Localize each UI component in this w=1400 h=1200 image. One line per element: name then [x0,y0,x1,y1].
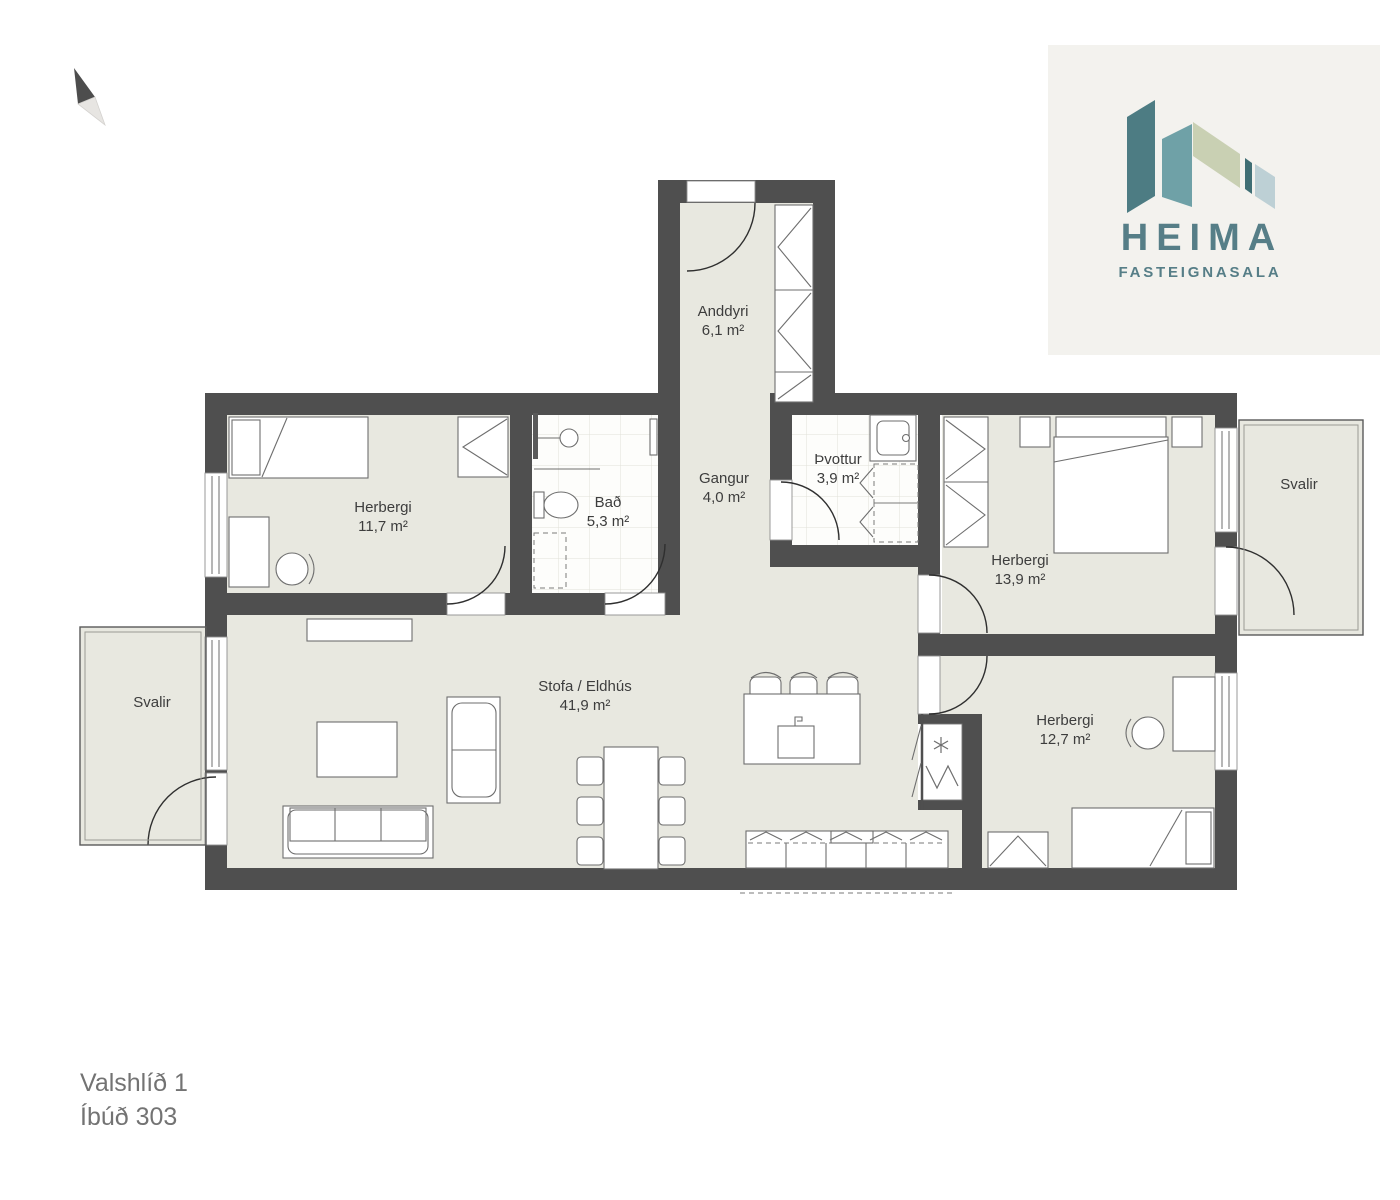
label-anddyri: Anddyri [698,303,749,320]
window-herbergi-nw [205,473,227,577]
dining-table [604,747,658,869]
balcony-door-east [1215,547,1237,615]
floor-svalir-west [80,627,206,845]
label-herbergi-se-area: 12,7 m² [1040,731,1091,748]
coffee-table [317,722,397,777]
bath-shelf [650,419,657,455]
entry-door [687,181,755,202]
north-arrow-icon [74,68,105,125]
sofa [283,806,433,858]
shower-panel [533,413,538,459]
toilet-tank [534,492,544,518]
closet [458,417,508,477]
furniture-anddyri [775,205,813,402]
chair [276,553,308,585]
label-stofa-eldhus-area: 41,9 m² [560,697,611,714]
door-thvottur [770,480,792,540]
toilet-bowl [544,492,578,518]
window-herbergi-se [1215,673,1237,770]
armchair [447,697,500,803]
label-stofa-eldhus: Stofa / Eldhús [538,678,631,695]
label-thvottur-area: 3,9 m² [817,470,860,487]
label-anddyri-area: 6,1 m² [702,322,745,339]
door-herbergi-se [918,656,940,714]
label-gangur: Gangur [699,470,749,487]
bed-pillow [232,420,260,475]
label-thvottur: Þvottur [814,451,862,468]
floor-gangur-join [680,593,770,615]
double-bed [1054,437,1168,553]
utility-closet [912,714,962,810]
label-herbergi-ne-area: 13,9 m² [995,571,1046,588]
address-unit: Íbúð 303 [80,1100,188,1134]
logo-background [1048,45,1380,355]
window-herbergi-ne [1215,428,1237,532]
nightstand-left [1020,417,1050,447]
label-svalir-west: Svalir [133,694,171,711]
sideboard [307,619,412,641]
floor-plan-drawing: HEIMA FASTEIGNASALA [0,0,1400,1200]
furniture-herbergi-ne [944,417,1202,553]
label-svalir-east: Svalir [1280,476,1318,493]
floor-dining-join [770,567,918,615]
label-herbergi-nw-area: 11,7 m² [358,518,408,535]
shower-head [560,429,578,447]
floor-plan-page: HEIMA FASTEIGNASALA [0,0,1400,1200]
desk [229,517,269,587]
door-herbergi-ne [918,575,940,633]
address-block: Valshlíð 1 Íbúð 303 [80,1066,188,1134]
bed-headboard [1056,417,1166,437]
laundry-faucet [903,435,910,442]
chair [1132,717,1164,749]
nightstand-right [1172,417,1202,447]
closet [988,832,1048,868]
heima-logo: HEIMA FASTEIGNASALA [1048,45,1380,355]
window-stofa-west [205,637,227,770]
floor-svalir-east [1239,420,1363,635]
label-bad-area: 5,3 m² [587,513,630,530]
address-street: Valshlíð 1 [80,1066,188,1100]
label-herbergi-se: Herbergi [1036,712,1094,729]
label-herbergi-nw: Herbergi [354,499,412,516]
label-herbergi-ne: Herbergi [991,552,1049,569]
label-gangur-area: 4,0 m² [703,489,746,506]
desk [1173,677,1215,751]
logo-tagline-text: FASTEIGNASALA [1118,264,1281,281]
dining-set [577,747,685,869]
kitchen-island [744,673,860,765]
balcony-door-west [205,773,227,845]
logo-brand-text: HEIMA [1121,217,1283,259]
label-bad: Bað [595,494,622,511]
bed-pillow [1186,812,1211,864]
